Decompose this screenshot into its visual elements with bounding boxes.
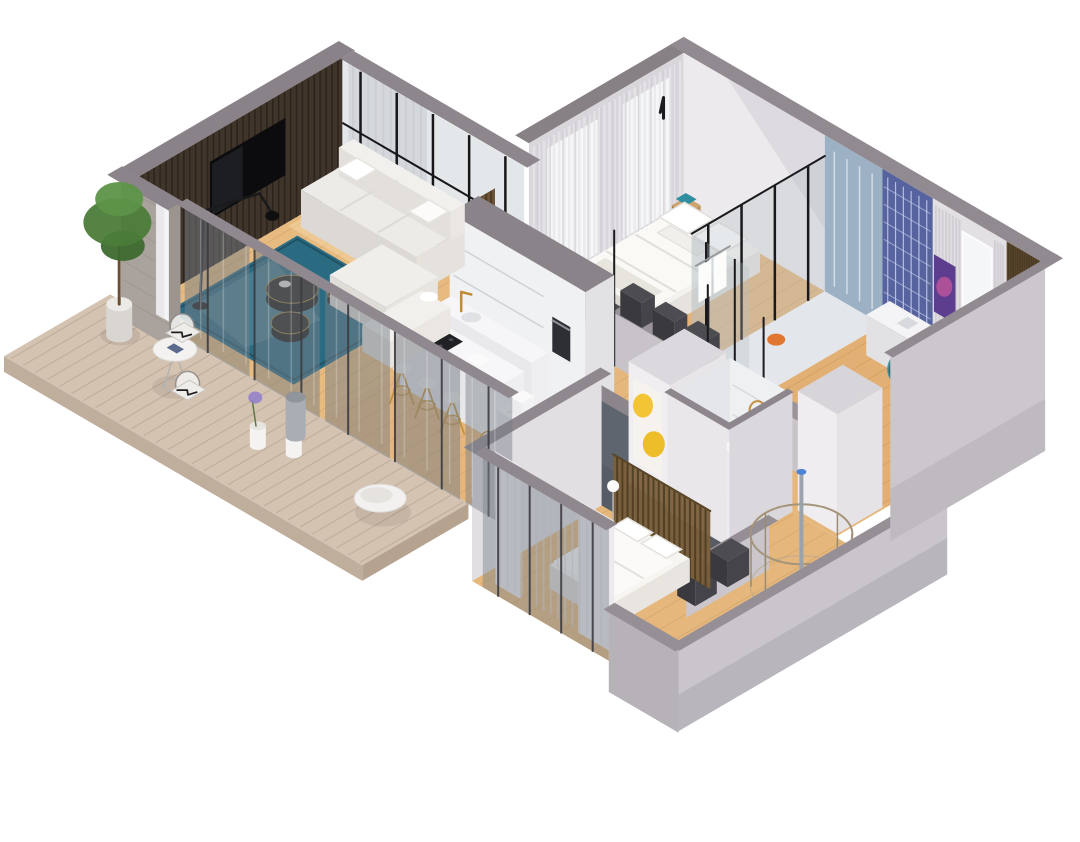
floorplan-image: Isometric 3D cutaway floor plan render o…: [0, 0, 1080, 842]
deck-vase: [286, 392, 306, 442]
tree-foliage-3: [95, 182, 143, 216]
arc-lamp-head: [265, 211, 279, 221]
deck-lounger-seat: [361, 487, 393, 503]
yellow-art-canvas: [633, 378, 662, 478]
lavender-pot-1: [250, 421, 266, 450]
apartment-floorplan-3d: [0, 0, 1080, 842]
yellow-art-shape-1: [633, 394, 653, 418]
shower-orange-stool: [767, 334, 785, 346]
burner-4: [449, 338, 454, 341]
lavender-bloom-1: [248, 392, 262, 404]
towel-2: [714, 250, 727, 294]
kitchen-sink: [461, 312, 481, 322]
yellow-art-shape-2: [643, 431, 665, 457]
stair-pole-cap: [796, 469, 806, 475]
towel-1: [698, 259, 711, 303]
lr-end-window-curtain: [156, 198, 164, 320]
lr-daybed-roll: [420, 292, 438, 302]
hall-cabinets: [798, 365, 883, 534]
office-galaxy-blob: [936, 277, 952, 297]
bed2-lamp-ball: [607, 480, 619, 492]
